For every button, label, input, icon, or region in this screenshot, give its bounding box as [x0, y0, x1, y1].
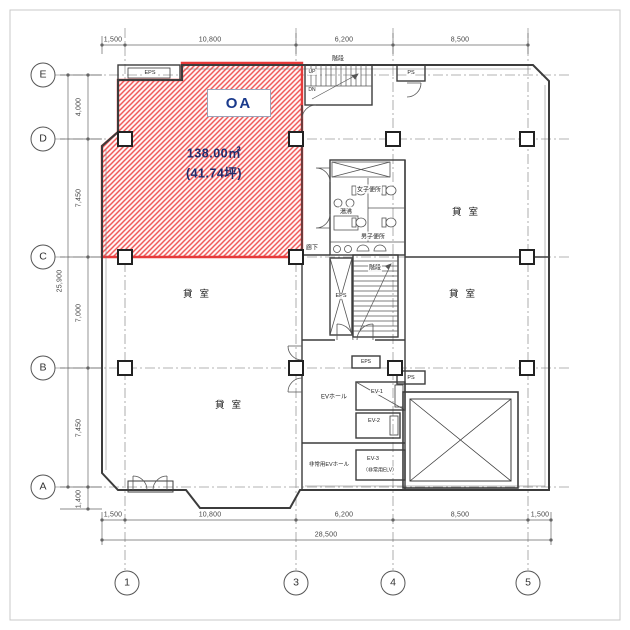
dim-bottom-5: 1,500 [531, 512, 550, 519]
label-women-toilet: 女子便所 [356, 185, 382, 194]
floor-plan: OA 138.00㎡ (41.74坪) E D C B A 1 3 4 5 1,… [0, 0, 630, 630]
label-ev2: EV-2 [367, 418, 381, 424]
label-hot-water: 湯沸 [339, 207, 353, 216]
grid-row-e: E [31, 63, 56, 88]
dim-bottom-2: 10,800 [199, 512, 222, 519]
dim-top-2: 10,800 [199, 37, 222, 44]
room-label-tenant-bottom-left: 貸室 [208, 397, 248, 411]
label-stairs-top: 階段 [331, 54, 345, 63]
label-dn: DN [307, 87, 316, 93]
grid-row-b: B [31, 356, 56, 381]
label-ev1: EV-1 [370, 389, 384, 395]
label-up: UP [308, 69, 317, 75]
oa-area-tsubo: (41.74坪) [186, 163, 242, 182]
label-corridor: 廊下 [305, 243, 319, 252]
dim-top-1: 1,500 [104, 37, 123, 44]
label-ps-top: PS [406, 70, 415, 76]
label-men-toilet: 男子便所 [360, 232, 386, 241]
grid-row-c: C [31, 245, 56, 270]
room-label-tenant-mid-left: 貸室 [176, 286, 216, 300]
dim-bottom-4: 8,500 [451, 512, 470, 519]
dim-top-4: 8,500 [451, 37, 470, 44]
label-emergency-ev-hall: 非常用EVホール [308, 460, 350, 468]
dim-bottom-3: 6,200 [335, 512, 354, 519]
oa-label: OA [226, 95, 253, 112]
dim-left-bottom: 1,400 [76, 490, 83, 509]
label-ev3: EV-3 [366, 456, 380, 462]
label-stairs-mid: 階段 [368, 263, 382, 272]
label-ps-mid: PS [406, 375, 415, 381]
dim-left-1: 4,000 [76, 98, 83, 117]
dim-bottom-1: 1,500 [104, 512, 123, 519]
grid-col-3: 3 [284, 571, 309, 596]
dim-top-3: 6,200 [335, 37, 354, 44]
label-ev3-note: （非常用ELV） [362, 467, 398, 474]
label-eps-stair: EPS [334, 293, 347, 299]
room-label-tenant-top-right: 貸室 [445, 204, 485, 218]
stairs-mid [353, 261, 398, 331]
void-shaft [403, 392, 518, 488]
label-ev-hall: EVホール [320, 392, 348, 401]
grid-col-4: 4 [381, 571, 406, 596]
dim-left-total: 25,900 [57, 270, 64, 293]
label-eps-ev: EPS [360, 359, 372, 365]
grid-row-a: A [31, 475, 56, 500]
oa-label-box: OA [207, 89, 271, 117]
dim-bottom-total: 28,500 [315, 532, 338, 539]
dim-left-4: 7,450 [76, 419, 83, 438]
oa-area-m2: 138.00㎡ [187, 143, 241, 162]
grid-row-d: D [31, 127, 56, 152]
label-eps-topleft: EPS [143, 70, 156, 76]
grid-col-1: 1 [115, 571, 140, 596]
dim-left-3: 7,000 [76, 304, 83, 323]
room-label-tenant-mid-right: 貸室 [442, 286, 482, 300]
dim-left-2: 7,450 [76, 189, 83, 208]
grid-col-5: 5 [516, 571, 541, 596]
